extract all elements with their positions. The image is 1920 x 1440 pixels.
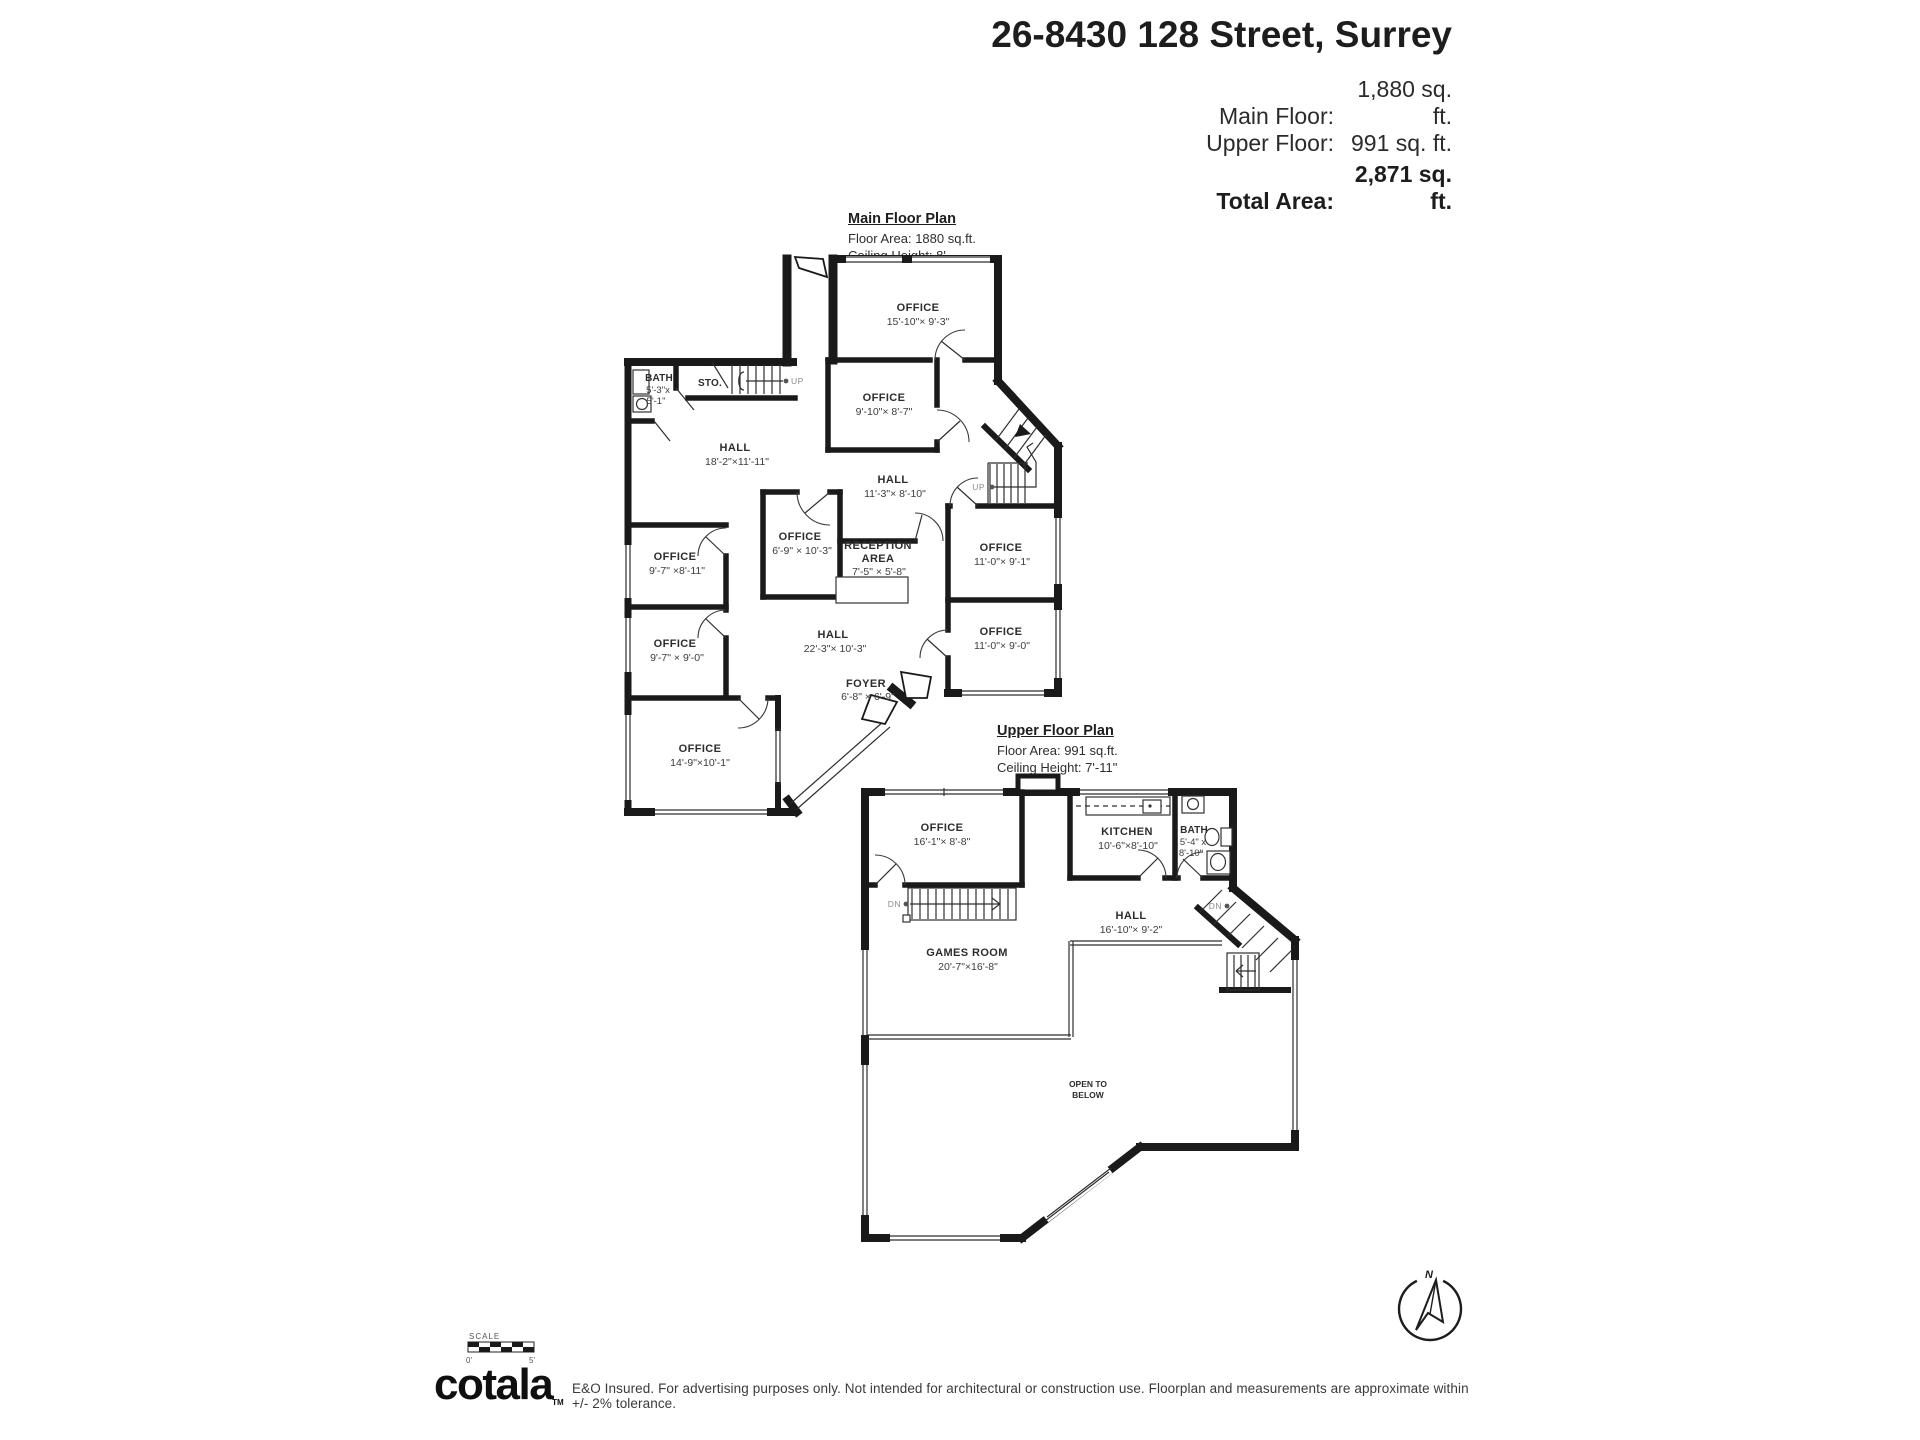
room-dims-hall-18: 18'-2"×11'-11"	[705, 456, 769, 468]
room-label-storage: STO.	[698, 378, 722, 389]
room-label-kitchen: KITCHEN	[1101, 826, 1153, 838]
main-floor-area-label: Main Floor:	[1219, 103, 1334, 130]
room-label-office-11-1: OFFICE	[980, 542, 1023, 554]
room-dims-foyer: 6'-8" × 6'-9"	[841, 691, 895, 703]
room-dims-kitchen: 10'-6"×8'-10"	[1098, 840, 1158, 852]
open-to-below-label-2: BELOW	[1072, 1090, 1105, 1100]
room-dims-office-11-1: 11'-0"× 9'-1"	[974, 556, 1030, 568]
room-dims-office-9-10: 9'-10"× 8'-7"	[856, 406, 913, 418]
room-label-office-9-7a: OFFICE	[654, 551, 697, 563]
room-dims-hall-11: 11'-3"× 8'-10"	[864, 488, 926, 500]
room-dims-games-room: 20'-7"×16'-8"	[938, 961, 998, 973]
foyer-door-leaf-1	[901, 672, 931, 698]
entry-door-leaf	[795, 257, 827, 277]
compass: N	[1385, 1266, 1475, 1356]
room-label-office-upper: OFFICE	[921, 822, 964, 834]
room-dims-office-upper: 16'-1"× 8'-8"	[914, 836, 971, 848]
room-label-hall-18: HALL	[720, 442, 751, 454]
disclaimer-text: E&O Insured. For advertising purposes on…	[572, 1381, 1477, 1411]
stair-label-up-left: UP	[791, 376, 804, 386]
upper-floor-doors	[875, 850, 1203, 885]
room-label-reception-1: RECEPTION	[844, 540, 912, 552]
room-label-office-15-10: OFFICE	[897, 302, 940, 314]
main-floor-stairs-left	[732, 364, 788, 394]
room-dims-office-6-9: 6'-9" × 10'-3"	[772, 545, 832, 557]
main-floor-area-row: Main Floor:1,880 sq. ft.	[0, 76, 1452, 130]
room-label-hall-22: HALL	[818, 629, 849, 641]
room-dims-office-14-9: 14'-9"×10'-1"	[670, 757, 730, 769]
room-label-hall-upper: HALL	[1116, 910, 1147, 922]
room-label-foyer: FOYER	[846, 678, 886, 690]
room-label-bath-upper: BATH	[1180, 825, 1208, 836]
room-dims-office-9-7a: 9'-7" ×8'-11"	[649, 565, 705, 577]
room-label-bath-main: BATH	[645, 373, 673, 384]
total-area-row: Total Area:2,871 sq. ft.	[0, 161, 1452, 215]
upper-floor-area-row: Upper Floor:991 sq. ft.	[0, 130, 1452, 157]
room-label-office-9-7b: OFFICE	[654, 638, 697, 650]
floorplan-page: 26-8430 128 Street, Surrey Main Floor:1,…	[0, 0, 1920, 1440]
stair-label-dn-left: DN	[888, 899, 901, 909]
stair-label-dn-right: DN	[1209, 901, 1222, 911]
room-dims-bath-main-2: 5'-1"	[647, 396, 666, 407]
compass-needle	[1416, 1280, 1443, 1330]
room-dims-hall-upper: 16'-10"× 9'-2"	[1100, 924, 1163, 936]
room-dims-office-15-10: 15'-10"× 9'-3"	[887, 316, 950, 328]
reception-desk	[836, 577, 908, 603]
total-area-label: Total Area:	[1216, 188, 1334, 215]
toilet-tank	[1221, 828, 1232, 846]
room-label-office-6-9: OFFICE	[779, 531, 822, 543]
page-title: 26-8430 128 Street, Surrey	[0, 14, 1452, 56]
compass-north-label: N	[1425, 1269, 1434, 1281]
room-dims-hall-22: 22'-3"× 10'-3"	[804, 643, 867, 655]
room-label-games-room: GAMES ROOM	[926, 947, 1008, 959]
upper-floor-stairs-left	[903, 888, 1016, 922]
room-label-reception-2: AREA	[862, 553, 895, 565]
room-dims-bath-upper-2: 8'-10"	[1179, 848, 1203, 859]
room-dims-bath-main-1: 5'-3"x	[646, 385, 670, 396]
room-label-hall-11: HALL	[878, 474, 909, 486]
upper-floor-area-value: 991 sq. ft.	[1334, 130, 1452, 157]
room-dims-bath-upper-1: 5'-4" x	[1180, 837, 1207, 848]
open-to-below-label-1: OPEN TO	[1069, 1079, 1107, 1089]
room-label-office-14-9: OFFICE	[679, 743, 722, 755]
room-dims-office-9-7b: 9'-7" × 9'-0"	[650, 652, 704, 664]
main-floor-area-value: 1,880 sq. ft.	[1334, 76, 1452, 130]
upper-floor-room-labels: OFFICE 16'-1"× 8'-8" KITCHEN 10'-6"×8'-1…	[888, 822, 1222, 1100]
room-dims-office-11-0: 11'-0"× 9'-0"	[974, 640, 1030, 652]
area-summary: Main Floor:1,880 sq. ft. Upper Floor:991…	[0, 76, 1452, 215]
logo-text: cotala	[434, 1360, 552, 1409]
main-floor-plan-title: Main Floor Plan	[848, 210, 976, 230]
upper-floor-plan-drawing: OFFICE 16'-1"× 8'-8" KITCHEN 10'-6"×8'-1…	[850, 770, 1330, 1400]
kitchen-sink	[1143, 800, 1161, 813]
room-label-office-9-10: OFFICE	[863, 392, 906, 404]
scale-label: SCALE	[469, 1332, 500, 1341]
upper-floor-area-label: Upper Floor:	[1206, 130, 1334, 157]
main-floor-plan-drawing: OFFICE 15'-10"× 9'-3" OFFICE 9'-10"× 8'-…	[600, 240, 1120, 840]
room-label-office-11-0: OFFICE	[980, 626, 1023, 638]
scale-checker	[468, 1342, 534, 1352]
cotala-logo: cotalaTM	[434, 1360, 564, 1410]
logo-tm: TM	[552, 1398, 564, 1407]
total-area-value: 2,871 sq. ft.	[1334, 161, 1452, 215]
stair-label-up-right: UP	[972, 482, 985, 492]
main-floor-walls	[628, 259, 1058, 812]
open-below-railing	[867, 941, 1222, 1039]
room-dims-reception: 7'-5" × 5'-8"	[852, 566, 906, 578]
